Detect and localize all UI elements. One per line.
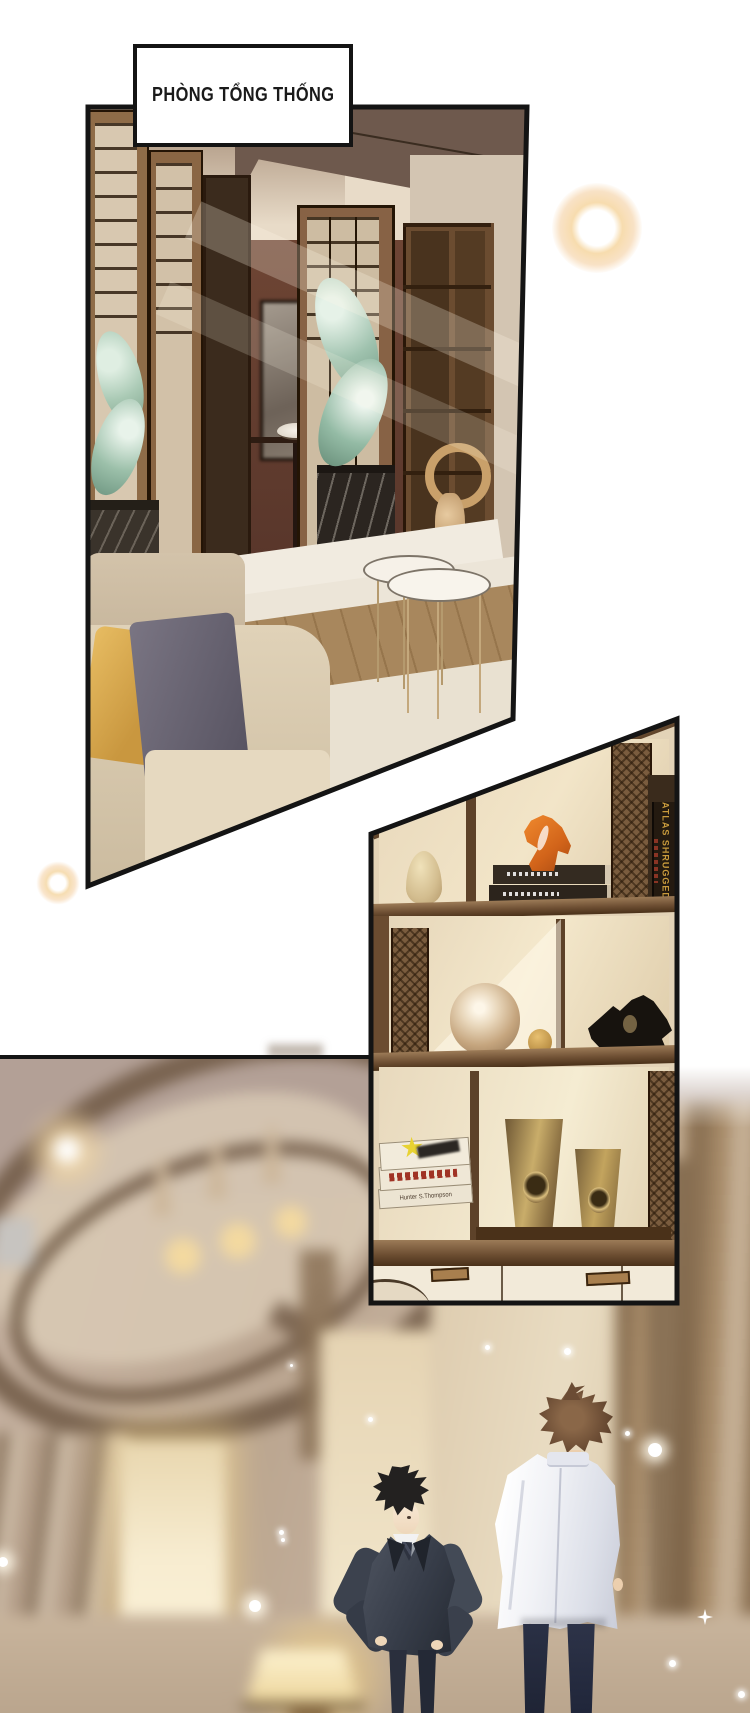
- candle-glow: [275, 1206, 307, 1238]
- book-spine-dashes: [503, 892, 559, 896]
- bronze-vase-hole: [588, 1187, 610, 1213]
- table-lamp-base: [290, 1706, 330, 1713]
- panel-suite-interior: [85, 105, 530, 890]
- white-book-stack: Hunter S.Thompson: [374, 1131, 474, 1215]
- glow-dot-left: [36, 861, 80, 905]
- man-dark-hand: [431, 1640, 443, 1650]
- sparkle: [249, 1600, 261, 1612]
- candle-glow: [165, 1238, 201, 1274]
- pearl-vase: [450, 983, 520, 1055]
- cubby-divider: [466, 749, 476, 904]
- side-table-leg: [479, 595, 481, 713]
- side-table-top: [387, 568, 491, 602]
- grey-patch: [0, 1218, 34, 1266]
- side-table-leg: [437, 599, 439, 719]
- sparkle: [485, 1345, 490, 1350]
- man-dark-eye: [407, 1516, 411, 1519]
- cubby-divider: [470, 1071, 479, 1240]
- sparkle: [625, 1431, 630, 1436]
- man-dark-hand: [375, 1636, 387, 1646]
- shelf-base-bar: [371, 1240, 677, 1266]
- man-dark-leg: [415, 1650, 439, 1713]
- man-white-jacket: [455, 1390, 635, 1713]
- candle-glow: [220, 1223, 256, 1259]
- sparkle: [738, 1691, 745, 1698]
- side-table-leg: [407, 595, 409, 713]
- sparkle: [290, 1364, 293, 1367]
- comic-page: ATLAS SHRUGGED Hunter S.Thompson: [0, 0, 750, 1713]
- cubby-frame-left: [371, 916, 389, 1056]
- cabinet-seam: [501, 1266, 503, 1303]
- panel-display-shelf: ATLAS SHRUGGED Hunter S.Thompson: [371, 719, 677, 1303]
- cabinet-handle: [431, 1267, 470, 1282]
- atlas-author-marks: [654, 839, 658, 883]
- screen-slats: [95, 123, 137, 328]
- sparkle: [564, 1348, 571, 1355]
- woven-column: [648, 1071, 680, 1240]
- man-dark-leg: [387, 1650, 409, 1713]
- caption-text: PHÒNG TỔNG THỐNG: [152, 84, 334, 107]
- sparkle: [368, 1417, 373, 1422]
- section-top-rule: [0, 1055, 378, 1059]
- book-spine-dashes: [507, 872, 559, 876]
- woven-column: [611, 743, 652, 904]
- sofa-cushion-front: [145, 750, 330, 890]
- caption-box: PHÒNG TỔNG THỐNG: [133, 44, 353, 147]
- sparkle: [281, 1538, 285, 1542]
- book-author-text: Hunter S.Thompson: [399, 1191, 452, 1202]
- sparkle: [648, 1443, 662, 1457]
- man-white-leg: [563, 1624, 599, 1713]
- sparkle: [669, 1660, 676, 1667]
- wall-lamp-core: [54, 1137, 80, 1163]
- bronze-vase-hole: [523, 1171, 549, 1203]
- sparkle: [279, 1530, 284, 1535]
- woven-column: [391, 928, 429, 1053]
- side-table-leg: [377, 577, 379, 682]
- cabinet-handle: [586, 1271, 631, 1286]
- shelf-surface-dark: [476, 1227, 671, 1241]
- glow-dot-top-right: [552, 183, 642, 273]
- man-white-leg: [519, 1624, 553, 1713]
- man-white-collar: [547, 1452, 589, 1467]
- black-sculpture-glint: [623, 1015, 637, 1033]
- man-white-hand: [613, 1578, 623, 1591]
- atlas-book-title: ATLAS SHRUGGED: [661, 802, 670, 902]
